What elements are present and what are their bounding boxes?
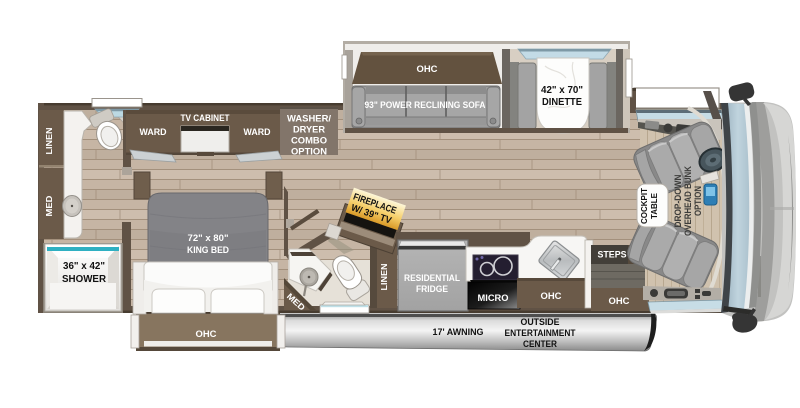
svg-text:OHC: OHC bbox=[417, 64, 438, 75]
svg-text:WARD: WARD bbox=[140, 127, 167, 137]
svg-text:17' AWNING: 17' AWNING bbox=[433, 327, 484, 338]
svg-text:RESIDENTIAL: RESIDENTIAL bbox=[404, 273, 460, 283]
svg-text:DROP-DOWN: DROP-DOWN bbox=[673, 175, 683, 228]
svg-text:MED: MED bbox=[44, 196, 54, 217]
svg-text:FRIDGE: FRIDGE bbox=[416, 284, 448, 294]
svg-text:TABLE: TABLE bbox=[650, 192, 659, 219]
svg-text:DRYER: DRYER bbox=[293, 125, 326, 135]
svg-text:COMBO: COMBO bbox=[291, 136, 327, 146]
svg-text:LINEN: LINEN bbox=[379, 264, 389, 291]
svg-text:OVERHEAD BUNK: OVERHEAD BUNK bbox=[683, 165, 693, 236]
svg-text:OPTION: OPTION bbox=[291, 147, 327, 157]
svg-text:TV CABINET: TV CABINET bbox=[181, 113, 230, 123]
svg-text:COCKPIT: COCKPIT bbox=[640, 188, 649, 224]
svg-text:STEPS: STEPS bbox=[598, 250, 627, 261]
svg-text:OHC: OHC bbox=[609, 296, 630, 307]
svg-text:72" x 80": 72" x 80" bbox=[188, 233, 229, 244]
svg-text:LINEN: LINEN bbox=[44, 128, 54, 155]
svg-text:36" x 42": 36" x 42" bbox=[63, 261, 105, 272]
svg-text:OHC: OHC bbox=[541, 291, 562, 302]
svg-text:42" x 70": 42" x 70" bbox=[541, 85, 583, 96]
svg-text:ENTERTAINMENT: ENTERTAINMENT bbox=[505, 328, 576, 338]
svg-text:DINETTE: DINETTE bbox=[542, 97, 582, 108]
svg-text:CENTER: CENTER bbox=[523, 339, 557, 349]
svg-text:WASHER/: WASHER/ bbox=[287, 114, 332, 124]
svg-text:WARD: WARD bbox=[244, 127, 271, 137]
svg-text:OHC: OHC bbox=[196, 329, 217, 340]
svg-text:KING BED: KING BED bbox=[187, 245, 229, 256]
svg-text:93" POWER RECLINING SOFA: 93" POWER RECLINING SOFA bbox=[365, 100, 486, 111]
svg-text:SHOWER: SHOWER bbox=[62, 274, 107, 285]
svg-text:OPTION: OPTION bbox=[693, 186, 703, 216]
svg-text:OUTSIDE: OUTSIDE bbox=[521, 317, 560, 327]
svg-text:MICRO: MICRO bbox=[478, 293, 509, 304]
